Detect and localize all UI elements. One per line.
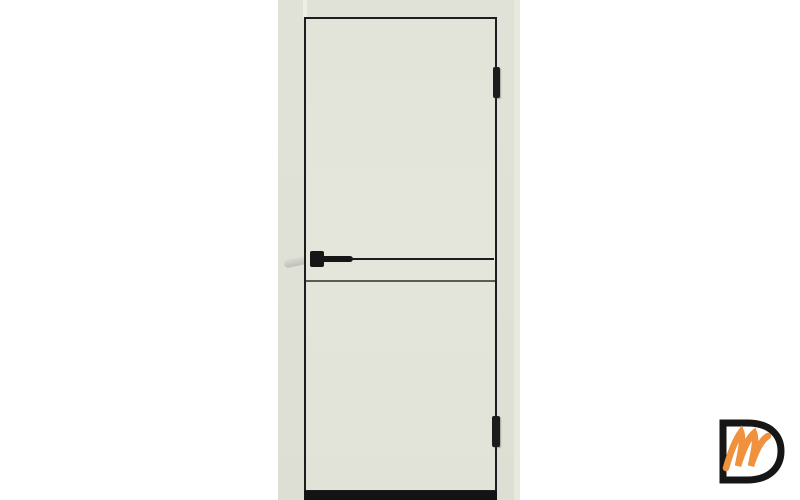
page-canvas — [0, 0, 800, 500]
door-groove-line — [306, 280, 495, 282]
door-leaf — [304, 17, 497, 492]
door-handle-rosette — [310, 251, 324, 267]
door-bottom-edge — [304, 491, 497, 500]
door-hinge-bottom — [492, 416, 500, 447]
door-frame-jamb — [514, 0, 520, 500]
watermark-m-icon — [726, 432, 768, 468]
door-molding-strip — [350, 258, 494, 260]
door-hinge-top — [493, 67, 500, 98]
brand-watermark-logo — [716, 417, 786, 485]
door-product-photo — [278, 0, 520, 500]
door-handle-lever — [323, 256, 353, 262]
